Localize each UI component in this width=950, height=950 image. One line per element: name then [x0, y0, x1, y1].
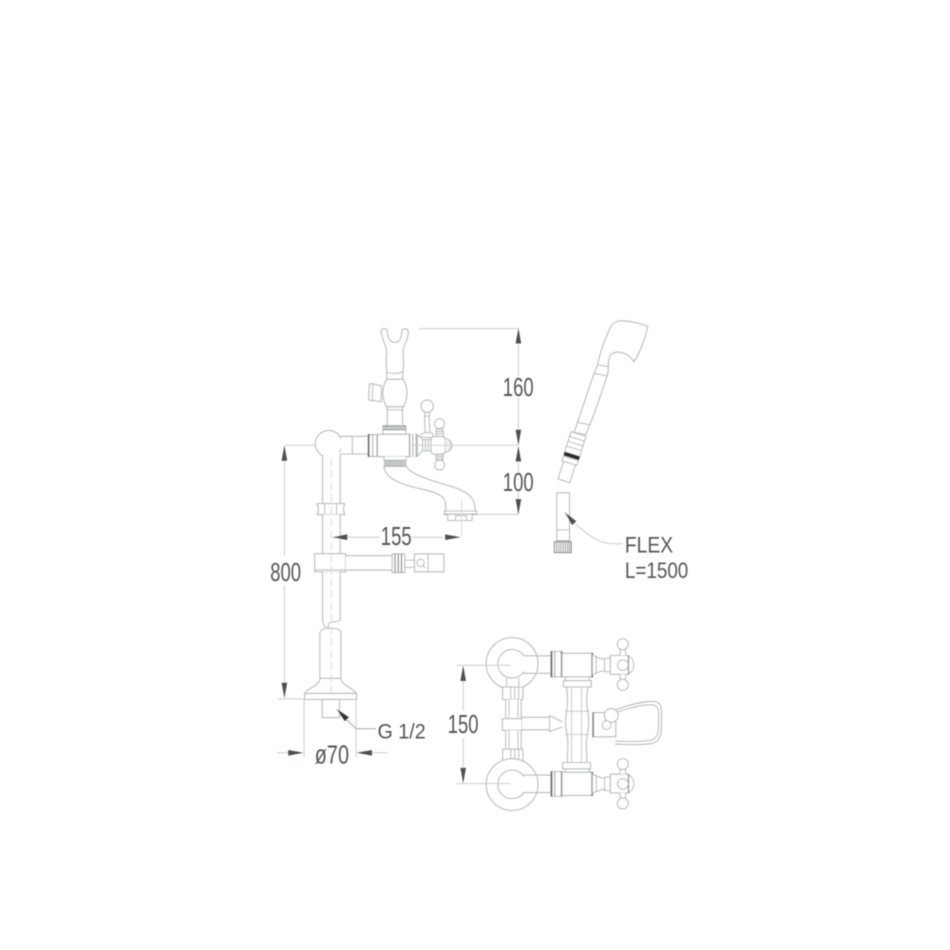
- svg-text:150: 150: [448, 711, 479, 739]
- svg-text:155: 155: [381, 523, 412, 551]
- svg-text:G 1/2: G 1/2: [378, 719, 426, 743]
- svg-text:100: 100: [503, 469, 534, 497]
- svg-text:800: 800: [270, 559, 301, 587]
- svg-text:ø70: ø70: [315, 741, 349, 769]
- svg-text:160: 160: [503, 374, 534, 402]
- svg-text:L=1500: L=1500: [625, 558, 688, 583]
- svg-text:FLEX: FLEX: [625, 533, 673, 558]
